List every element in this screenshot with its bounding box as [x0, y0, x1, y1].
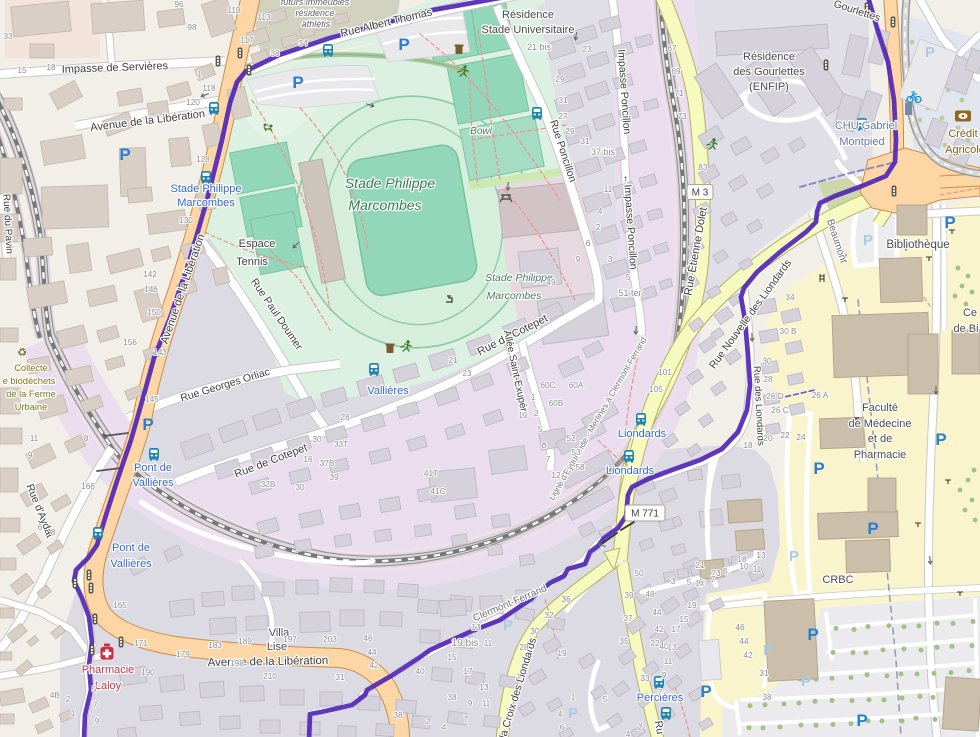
svg-text:30: 30	[762, 356, 772, 366]
svg-text:P: P	[398, 35, 409, 54]
svg-text:150: 150	[147, 307, 161, 317]
svg-text:110: 110	[227, 5, 241, 15]
svg-text:1: 1	[531, 392, 536, 402]
svg-text:2: 2	[534, 408, 539, 418]
svg-text:Pharmacie: Pharmacie	[82, 664, 135, 676]
svg-text:37 bis: 37 bis	[591, 147, 616, 157]
svg-text:105: 105	[649, 384, 663, 394]
svg-text:Montpied: Montpied	[839, 136, 884, 148]
svg-text:15: 15	[17, 65, 27, 75]
svg-text:5: 5	[538, 424, 543, 434]
svg-text:6: 6	[38, 522, 43, 532]
svg-text:13: 13	[667, 642, 677, 652]
svg-text:28: 28	[763, 374, 773, 384]
svg-text:Agricole: Agricole	[945, 144, 980, 156]
svg-text:Pharmacie: Pharmacie	[854, 449, 907, 461]
svg-text:156: 156	[123, 337, 137, 347]
svg-text:8: 8	[84, 433, 89, 443]
svg-text:1: 1	[197, 69, 202, 79]
svg-text:96: 96	[174, 0, 184, 9]
svg-text:8: 8	[51, 527, 56, 537]
svg-text:Liondards: Liondards	[606, 465, 655, 477]
svg-text:13: 13	[471, 622, 481, 632]
svg-text:Crédit: Crédit	[948, 128, 977, 140]
svg-text:35: 35	[619, 636, 629, 646]
svg-text:1: 1	[571, 692, 576, 702]
svg-text:171: 171	[134, 638, 148, 648]
svg-text:6: 6	[560, 722, 565, 732]
svg-text:197: 197	[283, 634, 297, 644]
svg-text:de Médecine: de Médecine	[849, 418, 912, 430]
svg-text:Vallières: Vallières	[367, 385, 409, 397]
svg-text:Pont de: Pont de	[134, 462, 172, 474]
svg-text:résidence: résidence	[295, 8, 334, 18]
svg-text:6: 6	[586, 238, 591, 248]
svg-text:10: 10	[518, 410, 528, 420]
svg-text:21: 21	[695, 560, 705, 570]
svg-text:11: 11	[664, 656, 673, 666]
svg-text:32B: 32B	[261, 479, 276, 489]
svg-text:28: 28	[340, 412, 350, 422]
svg-text:Marcombes: Marcombes	[177, 197, 235, 209]
svg-text:83: 83	[698, 162, 708, 172]
svg-text:9: 9	[662, 670, 667, 680]
svg-text:26 D: 26 D	[766, 391, 784, 401]
svg-text:27: 27	[558, 111, 568, 121]
svg-text:26 C: 26 C	[771, 405, 789, 415]
svg-text:Marcombes: Marcombes	[487, 290, 543, 302]
svg-text:37: 37	[623, 613, 633, 623]
svg-text:203: 203	[323, 634, 337, 644]
svg-text:31: 31	[580, 136, 590, 146]
svg-text:30: 30	[530, 626, 540, 636]
svg-text:183: 183	[208, 640, 222, 650]
svg-text:P: P	[935, 430, 946, 449]
svg-text:Pont de: Pont de	[112, 542, 150, 554]
svg-text:7: 7	[464, 714, 469, 724]
svg-text:12: 12	[551, 470, 561, 480]
svg-text:19 bis: 19 bis	[452, 638, 479, 649]
svg-text:4: 4	[558, 709, 563, 719]
svg-text:28: 28	[519, 642, 529, 652]
svg-text:21 bis: 21 bis	[527, 42, 552, 52]
svg-text:10: 10	[739, 561, 749, 571]
svg-text:130: 130	[179, 215, 193, 225]
svg-text:49: 49	[546, 277, 556, 287]
svg-text:31: 31	[759, 668, 769, 678]
svg-text:44: 44	[367, 647, 377, 657]
svg-text:P: P	[292, 73, 303, 92]
svg-text:9: 9	[576, 254, 581, 264]
svg-text:Stade Philippe: Stade Philippe	[345, 175, 436, 191]
svg-text:98: 98	[187, 22, 197, 32]
svg-text:P: P	[944, 213, 955, 232]
svg-text:29: 29	[555, 74, 565, 84]
svg-text:5: 5	[626, 272, 631, 282]
svg-text:Liondards: Liondards	[618, 428, 667, 440]
svg-text:210: 210	[263, 671, 277, 681]
svg-text:118: 118	[202, 83, 216, 93]
svg-text:71: 71	[674, 88, 684, 98]
svg-text:des Gourlettes: des Gourlettes	[733, 66, 805, 78]
svg-text:101: 101	[658, 367, 672, 377]
svg-text:145: 145	[145, 394, 159, 404]
svg-text:(ENFIP): (ENFIP)	[749, 81, 789, 93]
svg-text:P: P	[700, 682, 711, 701]
svg-text:1: 1	[71, 708, 76, 718]
svg-text:de Bi: de Bi	[953, 323, 978, 335]
svg-text:16: 16	[303, 454, 313, 464]
svg-text:9: 9	[28, 450, 33, 460]
svg-text:et de: et de	[868, 433, 892, 445]
svg-text:Urbaine: Urbaine	[15, 402, 48, 412]
svg-text:120: 120	[186, 97, 200, 107]
svg-text:21: 21	[448, 355, 458, 365]
svg-text:Stade Philippe: Stade Philippe	[485, 272, 553, 284]
svg-text:5: 5	[92, 684, 97, 694]
svg-text:M 771: M 771	[631, 508, 659, 519]
svg-text:7: 7	[546, 454, 551, 464]
svg-text:58: 58	[575, 462, 585, 472]
svg-text:32: 32	[544, 610, 554, 620]
svg-text:15: 15	[679, 614, 689, 624]
svg-text:22: 22	[650, 638, 660, 648]
svg-text:67: 67	[667, 43, 677, 53]
svg-text:128: 128	[196, 154, 210, 164]
svg-text:Espace: Espace	[239, 238, 276, 250]
svg-text:futurs immeubles: futurs immeubles	[281, 0, 350, 7]
svg-text:30: 30	[312, 434, 322, 444]
svg-text:146: 146	[144, 284, 158, 294]
svg-text:165: 165	[113, 600, 127, 610]
svg-text:51 ter: 51 ter	[618, 288, 641, 298]
svg-text:P: P	[856, 711, 867, 730]
svg-text:46: 46	[735, 622, 745, 632]
svg-text:de la Ferme: de la Ferme	[6, 389, 56, 399]
svg-text:4: 4	[626, 729, 631, 737]
svg-text:2: 2	[66, 694, 71, 704]
svg-text:198: 198	[230, 658, 244, 668]
svg-text:e biodéchets: e biodéchets	[3, 376, 56, 386]
svg-text:33: 33	[3, 31, 13, 41]
svg-text:117: 117	[240, 35, 254, 45]
svg-text:Stade Universitaire: Stade Universitaire	[482, 24, 575, 36]
svg-text:38: 38	[393, 710, 403, 720]
svg-text:2: 2	[596, 222, 601, 232]
svg-text:33: 33	[640, 673, 650, 683]
svg-text:7: 7	[93, 700, 98, 710]
svg-text:19: 19	[687, 600, 697, 610]
svg-text:29: 29	[565, 126, 575, 136]
svg-text:31: 31	[335, 672, 345, 682]
svg-text:42: 42	[369, 660, 379, 670]
svg-text:P: P	[568, 705, 578, 722]
svg-text:38: 38	[270, 48, 280, 58]
svg-text:Ru: Ru	[652, 720, 666, 735]
svg-text:18: 18	[743, 440, 753, 450]
svg-text:3: 3	[671, 576, 676, 586]
svg-text:17: 17	[671, 624, 681, 634]
svg-text:P: P	[925, 44, 935, 61]
svg-text:athlétis: athlétis	[302, 19, 331, 29]
svg-text:11: 11	[604, 184, 613, 194]
svg-text:P: P	[807, 625, 818, 644]
svg-text:60A: 60A	[569, 380, 584, 390]
svg-text:9: 9	[95, 716, 100, 726]
svg-text:15: 15	[447, 652, 457, 662]
svg-text:22: 22	[780, 430, 790, 440]
svg-text:17: 17	[463, 666, 473, 676]
svg-text:13: 13	[756, 550, 766, 560]
svg-text:50: 50	[634, 568, 644, 578]
svg-text:34: 34	[785, 292, 795, 302]
svg-text:179: 179	[176, 649, 190, 659]
svg-text:40: 40	[415, 666, 425, 676]
svg-text:Tennis: Tennis	[236, 256, 268, 268]
svg-text:P: P	[789, 548, 799, 565]
svg-text:48: 48	[645, 589, 655, 599]
svg-text:4: 4	[442, 722, 447, 732]
svg-text:166: 166	[81, 481, 95, 491]
svg-text:Marcombes: Marcombes	[348, 197, 421, 213]
svg-text:24: 24	[796, 432, 806, 442]
svg-text:P: P	[142, 415, 153, 434]
svg-text:11: 11	[484, 638, 493, 648]
svg-text:46: 46	[363, 633, 373, 643]
svg-text:20: 20	[763, 433, 773, 443]
svg-text:13: 13	[479, 682, 489, 692]
svg-text:CHU Gabriel: CHU Gabriel	[835, 120, 897, 132]
svg-text:39: 39	[329, 472, 339, 482]
svg-text:5: 5	[603, 694, 608, 704]
svg-text:2: 2	[638, 722, 643, 732]
svg-text:11: 11	[30, 433, 39, 443]
svg-text:9: 9	[468, 698, 473, 708]
svg-text:4: 4	[598, 206, 603, 216]
svg-text:P: P	[867, 519, 878, 538]
svg-text:8: 8	[723, 566, 728, 576]
svg-text:Bibliothèque: Bibliothèque	[886, 239, 949, 251]
svg-text:Ce: Ce	[963, 307, 977, 319]
svg-text:42: 42	[743, 650, 753, 660]
svg-text:P: P	[119, 145, 130, 164]
svg-text:3: 3	[608, 254, 613, 264]
svg-text:143: 143	[153, 347, 167, 357]
svg-text:18: 18	[46, 62, 56, 72]
svg-text:31: 31	[558, 95, 568, 105]
svg-text:42: 42	[654, 624, 664, 634]
svg-text:34: 34	[298, 38, 308, 48]
svg-text:52: 52	[566, 433, 576, 443]
svg-text:8: 8	[542, 440, 547, 450]
svg-text:7: 7	[711, 574, 716, 584]
svg-text:Vallières: Vallières	[110, 558, 152, 570]
svg-text:Laloy: Laloy	[95, 680, 122, 692]
svg-text:30: 30	[295, 482, 305, 492]
svg-text:113: 113	[257, 12, 271, 22]
svg-text:44: 44	[739, 636, 749, 646]
svg-text:39: 39	[624, 590, 634, 600]
svg-text:23: 23	[582, 44, 592, 54]
svg-text:P: P	[863, 232, 873, 249]
svg-text:69: 69	[671, 66, 681, 76]
svg-text:26 A: 26 A	[812, 390, 829, 400]
svg-text:CRBC: CRBC	[822, 574, 853, 586]
svg-text:38: 38	[762, 692, 772, 702]
svg-text:Résidence: Résidence	[502, 9, 554, 21]
svg-text:Faculté: Faculté	[862, 402, 898, 414]
svg-text:P: P	[763, 642, 773, 659]
svg-text:41T: 41T	[424, 468, 438, 478]
svg-text:Collecte: Collecte	[14, 363, 48, 373]
svg-text:Résidence: Résidence	[743, 51, 795, 63]
svg-text:30 B: 30 B	[779, 326, 797, 336]
svg-text:41C: 41C	[430, 486, 445, 496]
svg-text:19: 19	[557, 648, 567, 658]
svg-text:4B: 4B	[50, 690, 61, 700]
svg-text:190: 190	[141, 667, 155, 677]
svg-text:P: P	[503, 617, 513, 634]
svg-text:44: 44	[652, 607, 662, 617]
svg-text:Stade Philippe: Stade Philippe	[171, 183, 242, 195]
svg-text:189: 189	[238, 636, 252, 646]
svg-text:53: 53	[571, 447, 581, 457]
svg-text:142: 142	[143, 269, 157, 279]
svg-text:11: 11	[482, 698, 491, 708]
svg-text:Vallières: Vallières	[132, 477, 174, 489]
svg-text:73: 73	[677, 111, 687, 121]
svg-text:2: 2	[426, 716, 431, 726]
svg-text:♻: ♻	[17, 347, 27, 359]
svg-text:11: 11	[753, 564, 762, 574]
svg-text:60B: 60B	[549, 398, 564, 408]
svg-text:Avenue de la Libération: Avenue de la Libération	[208, 655, 329, 669]
svg-text:P: P	[801, 673, 811, 690]
svg-text:60C: 60C	[540, 380, 555, 390]
svg-text:Bowl: Bowl	[470, 126, 492, 137]
svg-text:36: 36	[561, 594, 571, 604]
svg-text:7: 7	[658, 687, 663, 697]
svg-text:P: P	[813, 459, 824, 478]
svg-text:5: 5	[687, 577, 692, 587]
svg-text:6: 6	[699, 577, 704, 587]
svg-text:23: 23	[462, 368, 472, 378]
svg-text:33T: 33T	[334, 439, 348, 449]
svg-text:38: 38	[447, 692, 457, 702]
svg-text:37B: 37B	[320, 458, 335, 468]
svg-text:M 3: M 3	[692, 187, 709, 198]
